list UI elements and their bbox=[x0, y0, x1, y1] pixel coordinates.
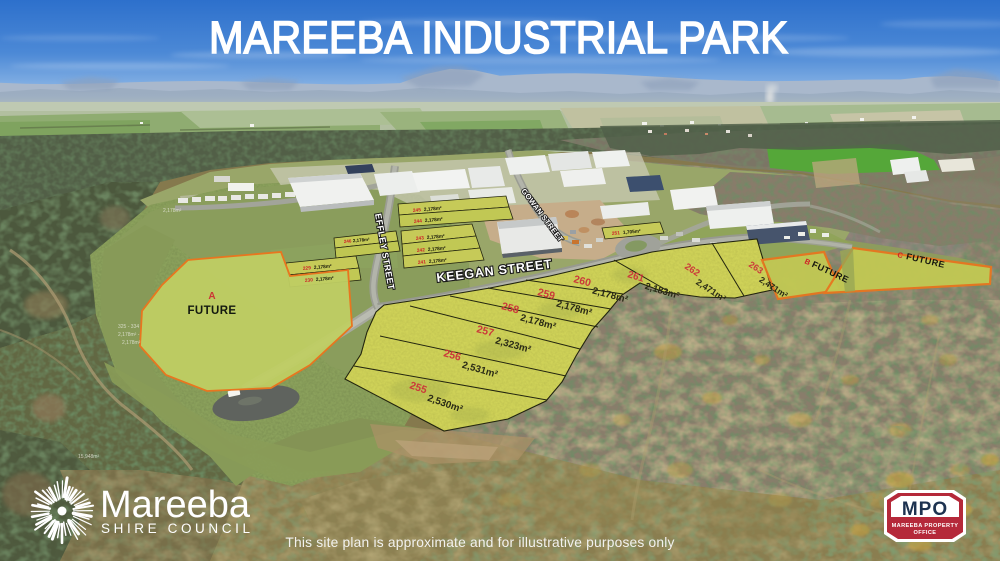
svg-text:MPO: MPO bbox=[902, 499, 948, 520]
svg-text:SHIRE COUNCIL: SHIRE COUNCIL bbox=[101, 521, 254, 536]
svg-text:Mareeba: Mareeba bbox=[100, 484, 251, 526]
svg-text:241: 241 bbox=[418, 259, 427, 266]
svg-text:245: 245 bbox=[413, 207, 422, 214]
svg-text:2,178m²: 2,178m² bbox=[122, 340, 141, 346]
svg-text:251: 251 bbox=[612, 230, 621, 237]
svg-text:MAREEBA PROPERTY: MAREEBA PROPERTY bbox=[892, 523, 959, 529]
svg-text:A: A bbox=[208, 291, 215, 302]
svg-text:MAREEBA INDUSTRIAL PARK: MAREEBA INDUSTRIAL PARK bbox=[209, 12, 788, 63]
svg-text:242: 242 bbox=[417, 247, 426, 254]
svg-text:15,948m²: 15,948m² bbox=[78, 454, 99, 460]
svg-text:OFFICE: OFFICE bbox=[914, 530, 937, 536]
svg-text:230: 230 bbox=[305, 277, 314, 284]
svg-text:243: 243 bbox=[416, 235, 425, 242]
svg-text:325 - 334: 325 - 334 bbox=[118, 324, 139, 330]
svg-text:244: 244 bbox=[414, 218, 423, 225]
svg-text:This site plan is approximate: This site plan is approximate and for il… bbox=[285, 535, 674, 550]
svg-text:246: 246 bbox=[344, 238, 352, 244]
svg-text:2,178m²: 2,178m² bbox=[163, 208, 182, 214]
svg-text:FUTURE: FUTURE bbox=[187, 305, 236, 317]
svg-text:229: 229 bbox=[303, 265, 312, 272]
svg-text:2,178m² -: 2,178m² - bbox=[118, 332, 140, 338]
